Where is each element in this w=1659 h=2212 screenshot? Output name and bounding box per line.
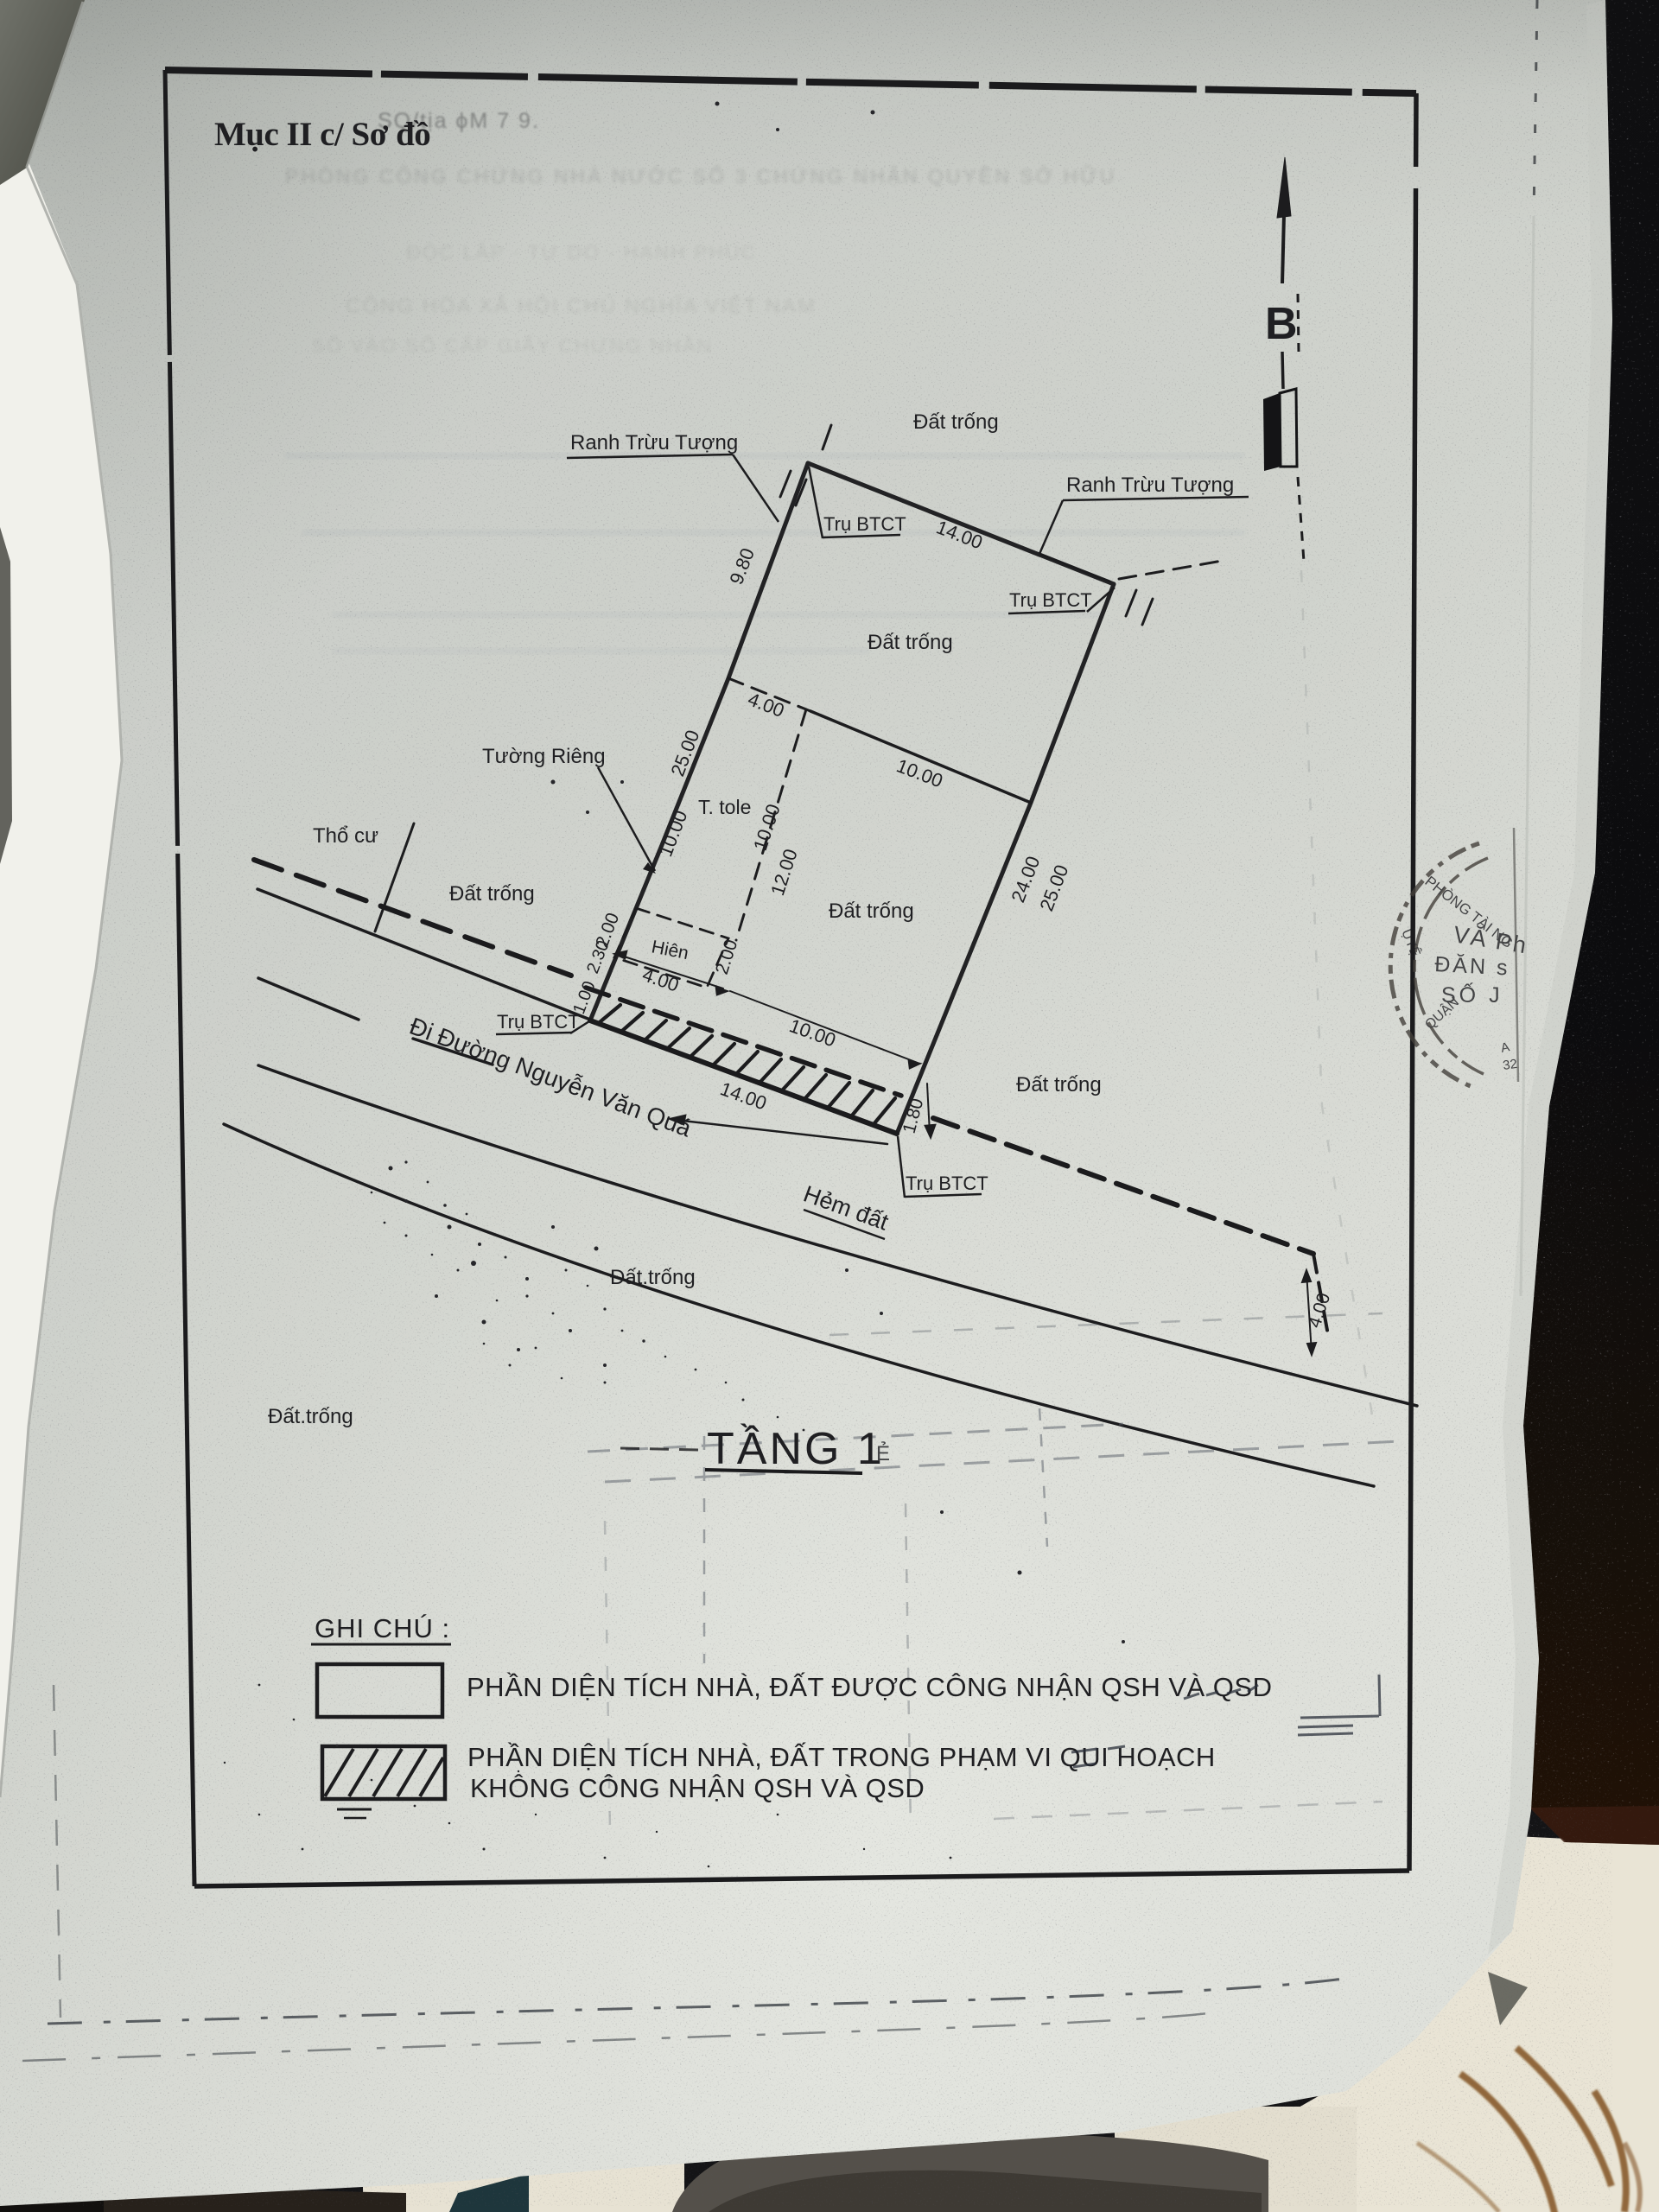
svg-text:KHÔNG CÔNG NHẬN QSH VÀ QSD: KHÔNG CÔNG NHẬN QSH VÀ QSD — [470, 1773, 925, 1803]
svg-text:Thổ cư: Thổ cư — [313, 824, 378, 848]
svg-text:PHẦN DIỆN TÍCH NHÀ, ĐẤT TRONG: PHẦN DIỆN TÍCH NHÀ, ĐẤT TRONG PHẠM VI QU… — [467, 1742, 1216, 1772]
svg-text:Trụ BTCT: Trụ BTCT — [497, 1011, 580, 1033]
svg-text:Đất.trống: Đất.trống — [268, 1405, 353, 1428]
svg-text:CỘNG HÒA XÃ HỘI CHỦ NGHĨA VIỆT: CỘNG HÒA XÃ HỘI CHỦ NGHĨA VIỆT NAM — [346, 293, 817, 318]
svg-text:32: 32 — [1502, 1057, 1518, 1073]
svg-text:PHÒNG CÔNG CHỨNG NHÀ NƯỚC SỐ 3: PHÒNG CÔNG CHỨNG NHÀ NƯỚC SỐ 3 CHỨNG NHẬ… — [285, 163, 1116, 188]
svg-text:SỐ VÀO SỔ CẤP GIẤY CHỨNG NHẬN: SỐ VÀO SỔ CẤP GIẤY CHỨNG NHẬN — [311, 334, 713, 357]
svg-text:Trụ BTCT: Trụ BTCT — [1009, 589, 1092, 611]
svg-text:ĐỘC LẬP - TỰ DO - HẠNH PHÚC: ĐỘC LẬP - TỰ DO - HẠNH PHÚC — [406, 240, 757, 264]
svg-text:Đất trống: Đất trống — [868, 631, 953, 654]
svg-text:Ranh Trừu Tượng: Ranh Trừu Tượng — [570, 431, 738, 454]
svg-text:GHI CHÚ :: GHI CHÚ : — [315, 1613, 450, 1643]
svg-text:ĐĂN s: ĐĂN s — [1434, 951, 1511, 981]
svg-text:Đất trống: Đất trống — [1016, 1073, 1102, 1096]
svg-text:B: B — [1265, 299, 1298, 349]
svg-text:Đất.trống: Đất.trống — [610, 1266, 696, 1289]
svg-text:T. tole: T. tole — [698, 796, 751, 818]
svg-text:Mục II c/ Sơ đồ: Mục II c/ Sơ đồ — [214, 116, 430, 153]
svg-text:Ranh Trừu Tượng: Ranh Trừu Tượng — [1066, 474, 1234, 497]
svg-text:Ẻ: Ẻ — [876, 1440, 890, 1465]
svg-text:Trụ BTCT: Trụ BTCT — [906, 1173, 988, 1194]
svg-text:Trụ BTCT: Trụ BTCT — [823, 513, 906, 535]
svg-text:Đất trống: Đất trống — [829, 899, 914, 923]
svg-text:TẦNG 1: TẦNG 1 — [707, 1423, 885, 1474]
svg-text:Tường Riêng: Tường Riêng — [482, 745, 606, 768]
svg-text:Đất trống: Đất trống — [913, 410, 999, 434]
svg-text:Đất trống: Đất trống — [449, 882, 535, 906]
svg-text:PHẦN DIỆN TÍCH NHÀ, ĐẤT ĐƯỢC C: PHẦN DIỆN TÍCH NHÀ, ĐẤT ĐƯỢC CÔNG NHẬN Q… — [467, 1672, 1272, 1702]
